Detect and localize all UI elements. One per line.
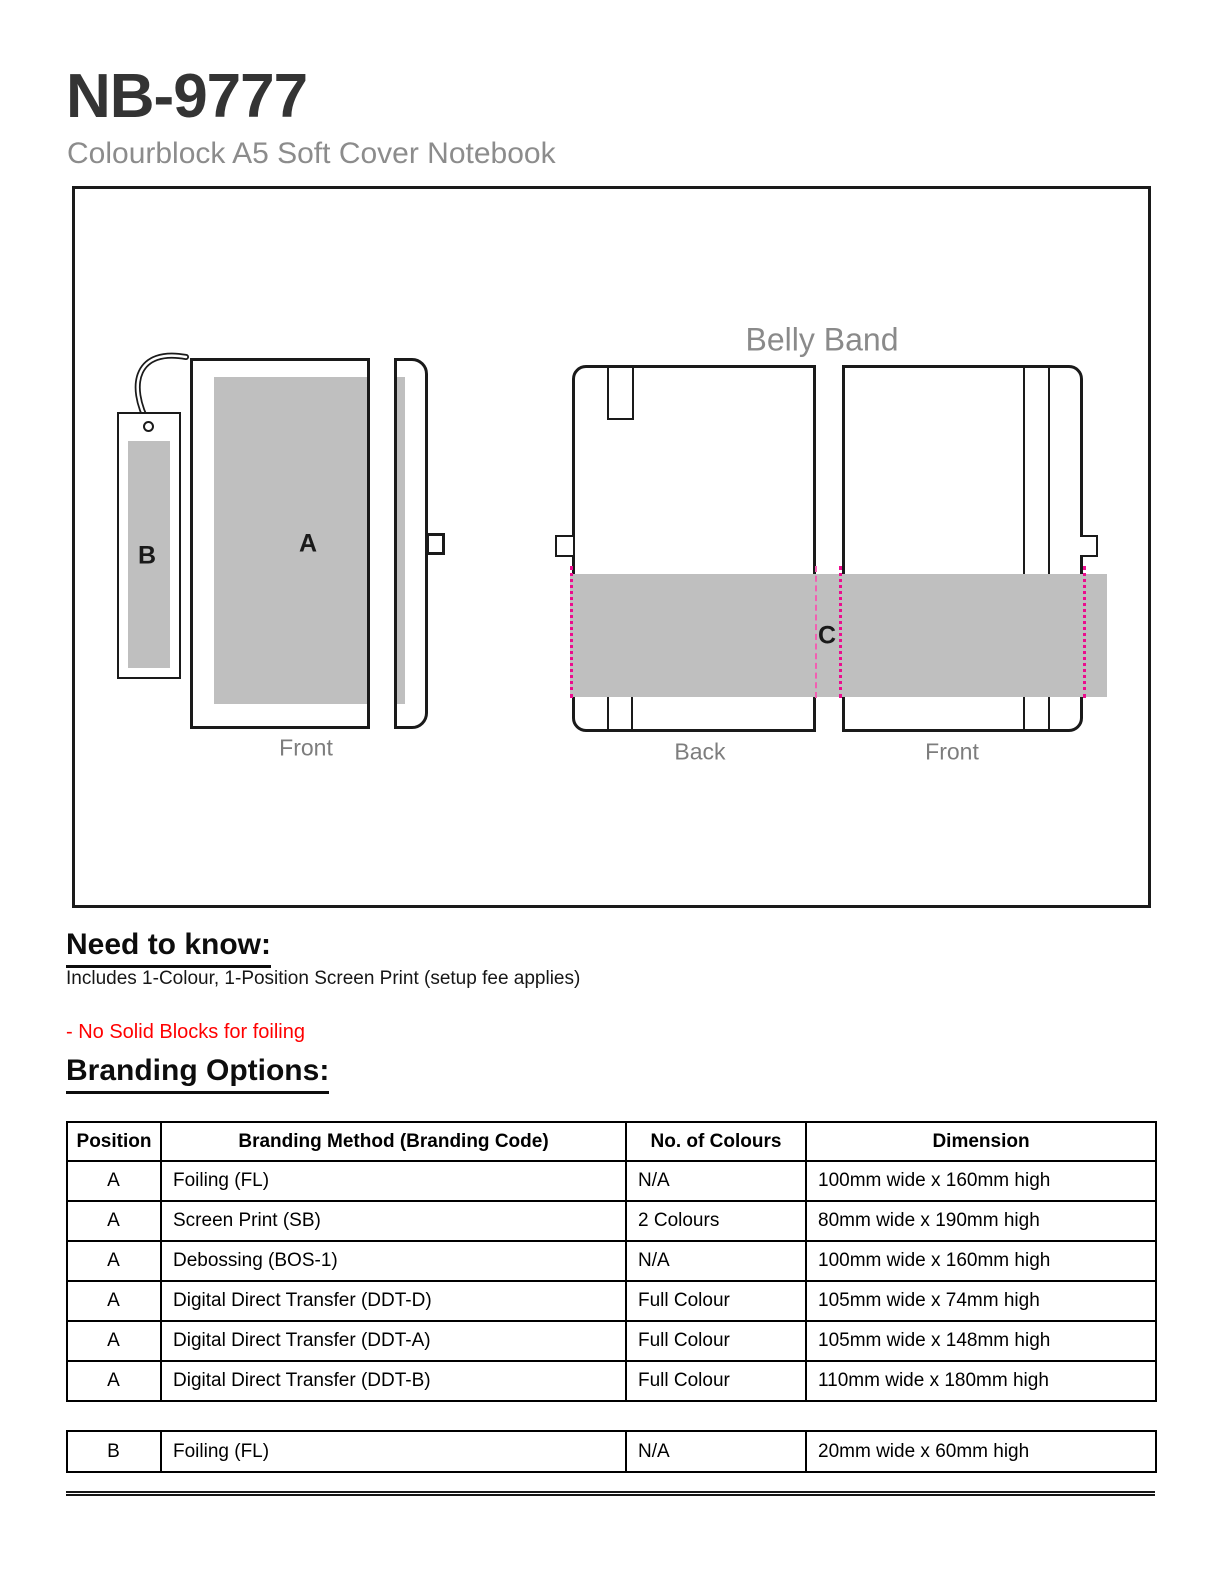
belly-band-guide-spine-back (815, 566, 817, 698)
caption-front-right: Front (925, 739, 979, 766)
table-cell: 105mm wide x 148mm high (806, 1321, 1156, 1361)
table-cell: A (67, 1201, 161, 1241)
footer-rule (66, 1491, 1155, 1496)
table-row: AFoiling (FL)N/A100mm wide x 160mm high (67, 1161, 1156, 1201)
back-side-tab (555, 535, 573, 557)
table-row: ADigital Direct Transfer (DDT-D)Full Col… (67, 1281, 1156, 1321)
page-title: NB-9777 (66, 66, 307, 128)
table-header-row: Position Branding Method (Branding Code)… (67, 1122, 1156, 1161)
table-cell: A (67, 1241, 161, 1281)
table-cell: Full Colour (626, 1321, 806, 1361)
col-branding-method: Branding Method (Branding Code) (161, 1122, 626, 1161)
foiling-note: - No Solid Blocks for foiling (66, 1021, 305, 1044)
table-cell: N/A (626, 1241, 806, 1281)
table-row: AScreen Print (SB)2 Colours80mm wide x 1… (67, 1201, 1156, 1241)
caption-back: Back (674, 739, 725, 766)
table-cell: Full Colour (626, 1281, 806, 1321)
pen-loop-tab (426, 533, 445, 555)
table-cell: 20mm wide x 60mm high (806, 1431, 1156, 1472)
table-cell: Debossing (BOS-1) (161, 1241, 626, 1281)
back-elastic-bottom (607, 697, 633, 729)
table-cell: 110mm wide x 180mm high (806, 1361, 1156, 1401)
table-cell: A (67, 1321, 161, 1361)
table-cell: N/A (626, 1431, 806, 1472)
product-diagram: Belly Band A B C Front (72, 186, 1151, 908)
need-to-know-line: Includes 1-Colour, 1-Position Screen Pri… (66, 968, 580, 990)
position-b-label: B (138, 542, 156, 571)
table-cell: 100mm wide x 160mm high (806, 1241, 1156, 1281)
need-to-know-heading: Need to know: (66, 928, 271, 968)
tag-hole (143, 421, 154, 432)
table-cell: Digital Direct Transfer (DDT-A) (161, 1321, 626, 1361)
table-cell: Full Colour (626, 1361, 806, 1401)
belly-band-guide-spine-front (839, 566, 842, 698)
branding-options-extra-table: BFoiling (FL)N/A20mm wide x 60mm high (66, 1430, 1157, 1473)
table-cell: Foiling (FL) (161, 1431, 626, 1472)
table-cell: 100mm wide x 160mm high (806, 1161, 1156, 1201)
table-cell: Screen Print (SB) (161, 1201, 626, 1241)
col-no-of-colours: No. of Colours (626, 1122, 806, 1161)
table-row: ADigital Direct Transfer (DDT-B)Full Col… (67, 1361, 1156, 1401)
belly-band-guide-left (570, 566, 573, 698)
spec-sheet-page: NB-9777 Colourblock A5 Soft Cover Notebo… (0, 0, 1224, 1584)
branding-options-table: Position Branding Method (Branding Code)… (66, 1121, 1157, 1402)
table-cell: N/A (626, 1161, 806, 1201)
branding-options-heading: Branding Options: (66, 1054, 329, 1094)
belly-band-label: Belly Band (746, 322, 899, 359)
front-side-tab (1080, 535, 1098, 557)
page-subtitle: Colourblock A5 Soft Cover Notebook (67, 137, 556, 170)
table-cell: Digital Direct Transfer (DDT-D) (161, 1281, 626, 1321)
table-row: ADebossing (BOS-1)N/A100mm wide x 160mm … (67, 1241, 1156, 1281)
table-cell: Foiling (FL) (161, 1161, 626, 1201)
table-cell: A (67, 1161, 161, 1201)
position-a-label: A (299, 530, 317, 559)
belly-band-guide-right (1083, 566, 1086, 698)
col-position: Position (67, 1122, 161, 1161)
table-cell: 80mm wide x 190mm high (806, 1201, 1156, 1241)
caption-front-left: Front (279, 735, 333, 762)
col-dimension: Dimension (806, 1122, 1156, 1161)
table-cell: 2 Colours (626, 1201, 806, 1241)
back-elastic-top (607, 368, 634, 420)
table-cell: Digital Direct Transfer (DDT-B) (161, 1361, 626, 1401)
position-c-label: C (818, 622, 836, 651)
elastic-band-front (367, 358, 397, 729)
table-row: BFoiling (FL)N/A20mm wide x 60mm high (67, 1431, 1156, 1472)
table-cell: A (67, 1361, 161, 1401)
table-cell: 105mm wide x 74mm high (806, 1281, 1156, 1321)
table-cell: A (67, 1281, 161, 1321)
table-cell: B (67, 1431, 161, 1472)
table-row: ADigital Direct Transfer (DDT-A)Full Col… (67, 1321, 1156, 1361)
